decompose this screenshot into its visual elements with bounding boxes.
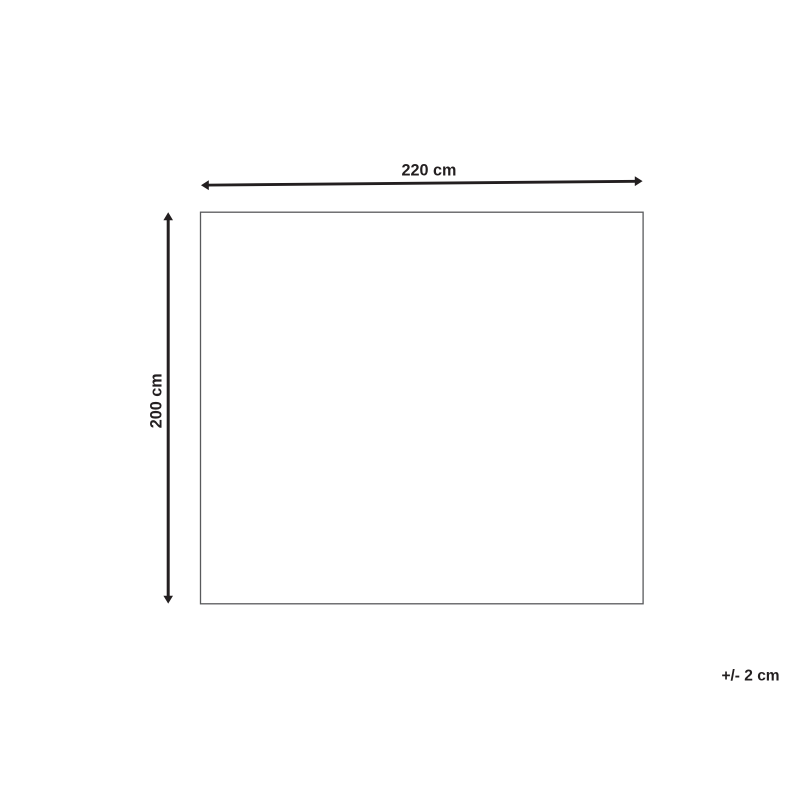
svg-text:220 cm: 220 cm [402,162,457,180]
svg-text:200 cm: 200 cm [148,373,166,428]
svg-text:+/- 2 cm: +/- 2 cm [721,668,779,685]
